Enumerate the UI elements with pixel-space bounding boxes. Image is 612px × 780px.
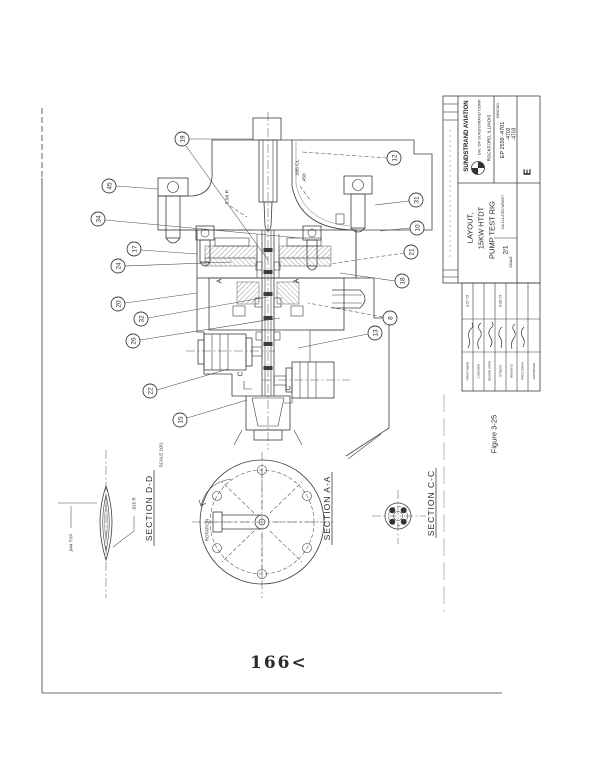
- approval-row-label: WEIGHTS: [510, 364, 514, 378]
- clearance-note: .005 CL: [295, 159, 301, 176]
- balloon-number: 45: [106, 182, 113, 190]
- balloon-callout: 31: [409, 193, 423, 207]
- balloon-callout: 15: [173, 413, 187, 427]
- section-dd-title: SECTION D-D: [144, 475, 154, 541]
- scale-value: 2/1: [502, 245, 509, 254]
- cut-plane-letter-a: A: [293, 278, 300, 283]
- balloon-callout: 32: [134, 312, 148, 326]
- drawing-title-line1: LAYOUT,: [466, 213, 475, 244]
- balloon-number: 12: [391, 154, 398, 162]
- sundstrand-logo-icon: [472, 162, 485, 175]
- balloon-callout: 13: [368, 326, 382, 340]
- company-location: ROCKFORD, ILLINOIS: [487, 115, 492, 162]
- approval-table: DRAFTSMAN CHECKER DESIGN APPD STRESS WEI…: [462, 283, 540, 391]
- balloon-callout: 26: [126, 334, 140, 348]
- balloon-callout: 22: [143, 384, 157, 398]
- balloon-number: 24: [115, 262, 122, 270]
- approval-row-label: DRAFTSMAN: [466, 362, 470, 381]
- approval-date: 6-25-73: [499, 295, 503, 307]
- mounting-bolt: [158, 178, 188, 243]
- balloon-callout: 34: [91, 212, 105, 226]
- radius-note: 5.00 R: [225, 189, 231, 204]
- balloon-number: 34: [95, 215, 102, 223]
- section-cc-title: SECTION C-C: [426, 470, 436, 536]
- page-border: [42, 108, 502, 693]
- leader-lines: [105, 139, 410, 418]
- balloon-number: 15: [177, 416, 184, 424]
- mounting-bolt: [336, 176, 372, 232]
- balloon-number: 8: [387, 316, 394, 320]
- balloon-callout: 21: [404, 245, 418, 259]
- balloon-callout: 24: [111, 259, 125, 273]
- approval-row-label: PROJ ENGR: [521, 361, 525, 379]
- dwg-no-label: DWG NO.: [496, 102, 500, 118]
- approval-row-label: STRESS: [499, 365, 503, 377]
- balloon-number: 13: [372, 329, 379, 337]
- section-aa-title: SECTION A-A: [322, 476, 332, 541]
- balloon-number: 19: [179, 135, 186, 143]
- calculated-weight-label: CALCULATED WEIGHT: [501, 195, 505, 230]
- cut-plane-letter-c: C: [237, 371, 244, 376]
- engineering-drawing-figure: SUNDSTRAND AVIATION DIV. OF SUNDSTRAND C…: [0, 0, 612, 780]
- approval-row-label: CHECKER: [477, 363, 481, 379]
- dimension-note: .450: [302, 173, 308, 183]
- company-division: DIV. OF SUNDSTRAND CORP.: [476, 99, 481, 155]
- page-number: 166<: [250, 653, 308, 673]
- left-drive-motor: [198, 334, 262, 370]
- balloon-number: 31: [413, 196, 420, 204]
- section-aa-view: ROTATION SECTION A-A: [192, 452, 336, 598]
- balloon-callout: 18: [395, 274, 409, 288]
- drive-quill: [253, 118, 281, 231]
- balloon-number: 17: [131, 245, 138, 253]
- balloon-callout: 45: [102, 179, 116, 193]
- figure-caption: Figure 3-25: [490, 415, 499, 453]
- revision-strip: [443, 104, 458, 277]
- section-dd-scale: SCALE 10/1: [159, 442, 164, 467]
- approval-row-label: APPROVED: [532, 362, 536, 380]
- balloon-number: 26: [130, 337, 137, 345]
- dwg-number-3: -4703: [511, 127, 517, 140]
- balloon-number: 22: [147, 387, 154, 395]
- balloon-number: 32: [138, 315, 145, 323]
- scale-label: SCALE: [509, 256, 513, 268]
- cut-plane-letter-a: A: [216, 278, 223, 283]
- title-block: SUNDSTRAND AVIATION DIV. OF SUNDSTRAND C…: [443, 96, 540, 283]
- balloon-callout: 8: [383, 311, 397, 325]
- section-dd-view: .044 TYP .015 R SECTION D-D SCALE 10/1: [58, 442, 164, 598]
- balloon-number: 18: [399, 277, 406, 285]
- scanned-manual-page: SUNDSTRAND AVIATION DIV. OF SUNDSTRAND C…: [0, 0, 612, 780]
- dim-r-label: .015 R: [132, 497, 137, 511]
- balloon-number: 21: [408, 248, 415, 256]
- drawing-title-line3: PUMP TEST RIG: [488, 201, 497, 259]
- balloon-callout: 19: [175, 132, 189, 146]
- balloon-callout: 20: [111, 297, 125, 311]
- section-cc-view: SECTION C-C: [372, 468, 436, 544]
- drawing-title-line2: 15KW HTDT: [477, 206, 486, 249]
- dim-typ-label: .044 TYP: [69, 534, 74, 553]
- company-name: SUNDSTRAND AVIATION: [464, 100, 470, 171]
- balloon-number: 20: [115, 300, 122, 308]
- balloon-number: 10: [414, 224, 421, 232]
- sheet-size-letter: E: [523, 168, 534, 175]
- approval-row-label: DESIGN APPD: [488, 360, 492, 381]
- approval-date: 2-27-73: [466, 295, 470, 307]
- rotation-label: ROTATION: [205, 519, 210, 542]
- signature-scribbles: [468, 322, 524, 349]
- balloon-callout: 17: [127, 242, 141, 256]
- balloon-callout: 12: [387, 151, 401, 165]
- cut-plane-letter-c: C: [285, 385, 292, 390]
- housing-right-wall: [332, 230, 389, 459]
- balloon-callout: 10: [410, 221, 424, 235]
